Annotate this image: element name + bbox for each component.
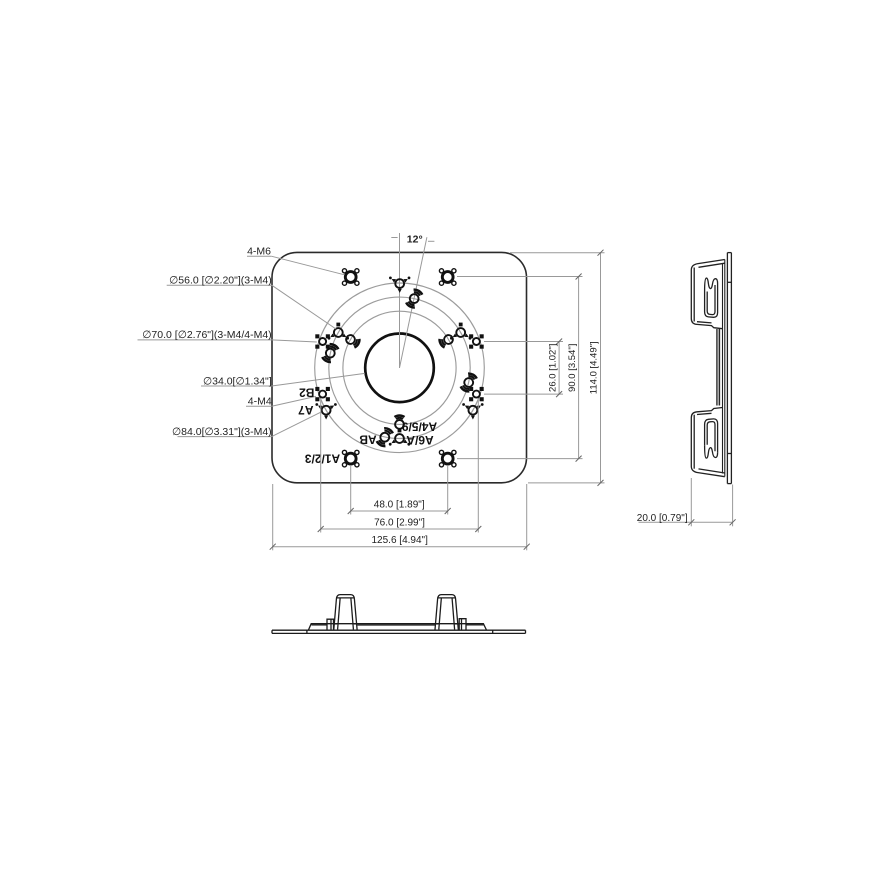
svg-text:AB: AB — [359, 433, 377, 447]
svg-text:90.0 [3.54"]: 90.0 [3.54"] — [567, 344, 578, 392]
svg-text:A6/A: A6/A — [406, 433, 434, 447]
svg-text:B2: B2 — [299, 386, 315, 400]
svg-text:12°: 12° — [407, 233, 423, 245]
svg-text:4-M6: 4-M6 — [247, 246, 271, 258]
svg-text:76.0 [2.99"]: 76.0 [2.99"] — [374, 518, 425, 529]
svg-text:A4/5/9: A4/5/9 — [401, 419, 437, 433]
svg-text:A1/2/3: A1/2/3 — [304, 451, 340, 465]
svg-text:125.6 [4.94"]: 125.6 [4.94"] — [372, 535, 429, 546]
svg-text:∅84.0[∅3.31"](3-M4): ∅84.0[∅3.31"](3-M4) — [172, 426, 272, 438]
svg-text:20.0 [0.79"]: 20.0 [0.79"] — [637, 513, 688, 524]
svg-text:48.0 [1.89"]: 48.0 [1.89"] — [374, 500, 425, 511]
svg-text:∅34.0[∅1.34"]: ∅34.0[∅1.34"] — [203, 375, 272, 387]
svg-text:A7: A7 — [298, 403, 314, 417]
svg-text:4-M4: 4-M4 — [248, 396, 272, 408]
svg-text:114.0 [4.49"]: 114.0 [4.49"] — [589, 341, 600, 394]
svg-text:26.0 [1.02"]: 26.0 [1.02"] — [547, 344, 558, 392]
svg-text:∅56.0 [∅2.20"](3-M4): ∅56.0 [∅2.20"](3-M4) — [169, 275, 272, 287]
svg-text:∅70.0 [∅2.76"](3-M4/4-M4): ∅70.0 [∅2.76"](3-M4/4-M4) — [142, 329, 271, 341]
